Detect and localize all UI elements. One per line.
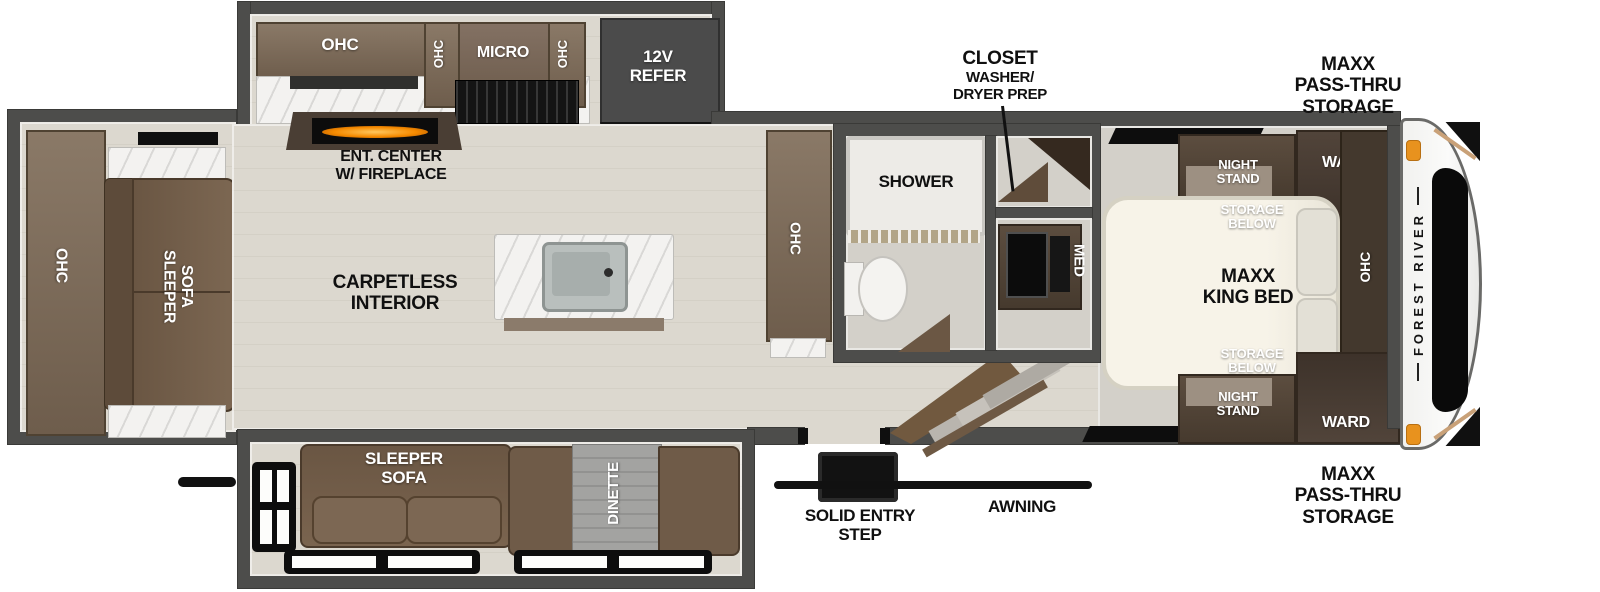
front-windshield-decal (1432, 168, 1468, 412)
carpetless-interior-label: CARPETLESS INTERIOR (300, 272, 490, 315)
dinette-bench-left (508, 446, 578, 556)
marker-light-bottom (1406, 424, 1421, 445)
bottom-wall-left-of-entry (748, 428, 804, 444)
med-label: MED (1070, 244, 1087, 277)
kitchen-ohc-label: OHC (300, 36, 380, 55)
pass-thru-storage-top-label: MAXX PASS-THRU STORAGE (1282, 54, 1414, 118)
entry-door-jamb-right (880, 428, 890, 444)
wardrobe-bottom-label: WARD (1300, 414, 1392, 432)
kitchen-stove (455, 80, 579, 124)
bedroom-ohc-label: OHC (1358, 252, 1373, 283)
window-pane (388, 556, 472, 568)
island-sink-basin (552, 252, 610, 296)
med-mirror-left (1006, 232, 1048, 298)
bottom-sofa-cushion-right (406, 496, 502, 544)
rear-ohc-label: OHC (52, 248, 70, 283)
island-base (504, 318, 664, 331)
window-pane (619, 556, 704, 568)
window-pane (522, 556, 607, 568)
rear-end-table-top (108, 147, 226, 180)
dinette-label: DINETTE (606, 462, 623, 525)
med-mirror-right (1050, 236, 1070, 292)
window-pane (277, 470, 289, 502)
refer-label: 12V REFER (604, 48, 712, 85)
storage-below-top-label: STORAGE BELOW (1204, 203, 1300, 232)
bottom-sleeper-sofa-label: SLEEPER SOFA (324, 450, 484, 487)
bottom-sofa-cushion-left (312, 496, 408, 544)
shower-door-track (848, 230, 980, 243)
rear-accessory-bar (178, 477, 236, 487)
dinette-bench-right (658, 446, 740, 556)
bath-divider-wall-horizontal (996, 208, 1092, 218)
pantry-ohc-label: OHC (786, 222, 803, 255)
island-faucet (604, 268, 613, 277)
bottom-slide-side-window (252, 462, 296, 552)
entry-door-jamb-left (798, 428, 808, 444)
closet-callout-subtitle: WASHER/ DRYER PREP (930, 70, 1070, 104)
brand-logo: FOREST RIVER (1410, 158, 1426, 410)
kitchen-slide-wall-top (238, 2, 724, 14)
ent-center-label: ENT. CENTER W/ FIREPLACE (296, 148, 486, 184)
solid-entry-step-label: SOLID ENTRY STEP (780, 506, 940, 544)
solid-entry-step (818, 452, 898, 502)
entry-door-opening (804, 428, 886, 444)
floorplan-canvas: OHC SLEEPER SOFA OHC OHC MICRO OHC 12V R… (0, 0, 1600, 592)
night-stand-top-label: NIGHT STAND (1188, 158, 1288, 187)
brand-name: FOREST RIVER (1411, 212, 1426, 356)
kitchen-ohc-small-left-label: OHC (432, 40, 446, 68)
bath-divider-wall-vertical (986, 136, 996, 350)
brand-dash (1417, 363, 1419, 381)
closet-callout-title: CLOSET (940, 48, 1060, 69)
kitchen-ohc-small-right-label: OHC (556, 40, 570, 68)
awning-line (774, 481, 1092, 489)
bottom-slide-window-right (514, 550, 712, 574)
window-pane (260, 510, 272, 544)
rear-ohc-cabinet (26, 130, 106, 436)
pass-thru-storage-bottom-label: MAXX PASS-THRU STORAGE (1282, 464, 1414, 528)
kitchen-micro-label: MICRO (462, 44, 544, 62)
rear-end-table-bottom (108, 405, 226, 438)
rear-tv (138, 132, 218, 145)
window-pane (292, 556, 376, 568)
shower-label: SHOWER (850, 172, 982, 191)
window-pane (277, 510, 289, 544)
bottom-slide-window-left (284, 550, 480, 574)
window-pane (260, 470, 272, 502)
toilet-bowl (858, 256, 908, 322)
storage-below-bottom-label: STORAGE BELOW (1204, 347, 1300, 376)
kitchen-slide-wall-left (238, 2, 250, 132)
kitchen-range-hood (290, 76, 418, 89)
king-bed-label: MAXX KING BED (1158, 266, 1338, 309)
fireplace-flame-glow (322, 126, 428, 138)
awning-label: AWNING (962, 497, 1082, 516)
pantry-counter (770, 338, 826, 358)
night-stand-bottom-label: NIGHT STAND (1188, 390, 1288, 419)
rear-sleeper-sofa-label: SLEEPER SOFA (160, 250, 195, 323)
brand-dash (1417, 187, 1419, 205)
